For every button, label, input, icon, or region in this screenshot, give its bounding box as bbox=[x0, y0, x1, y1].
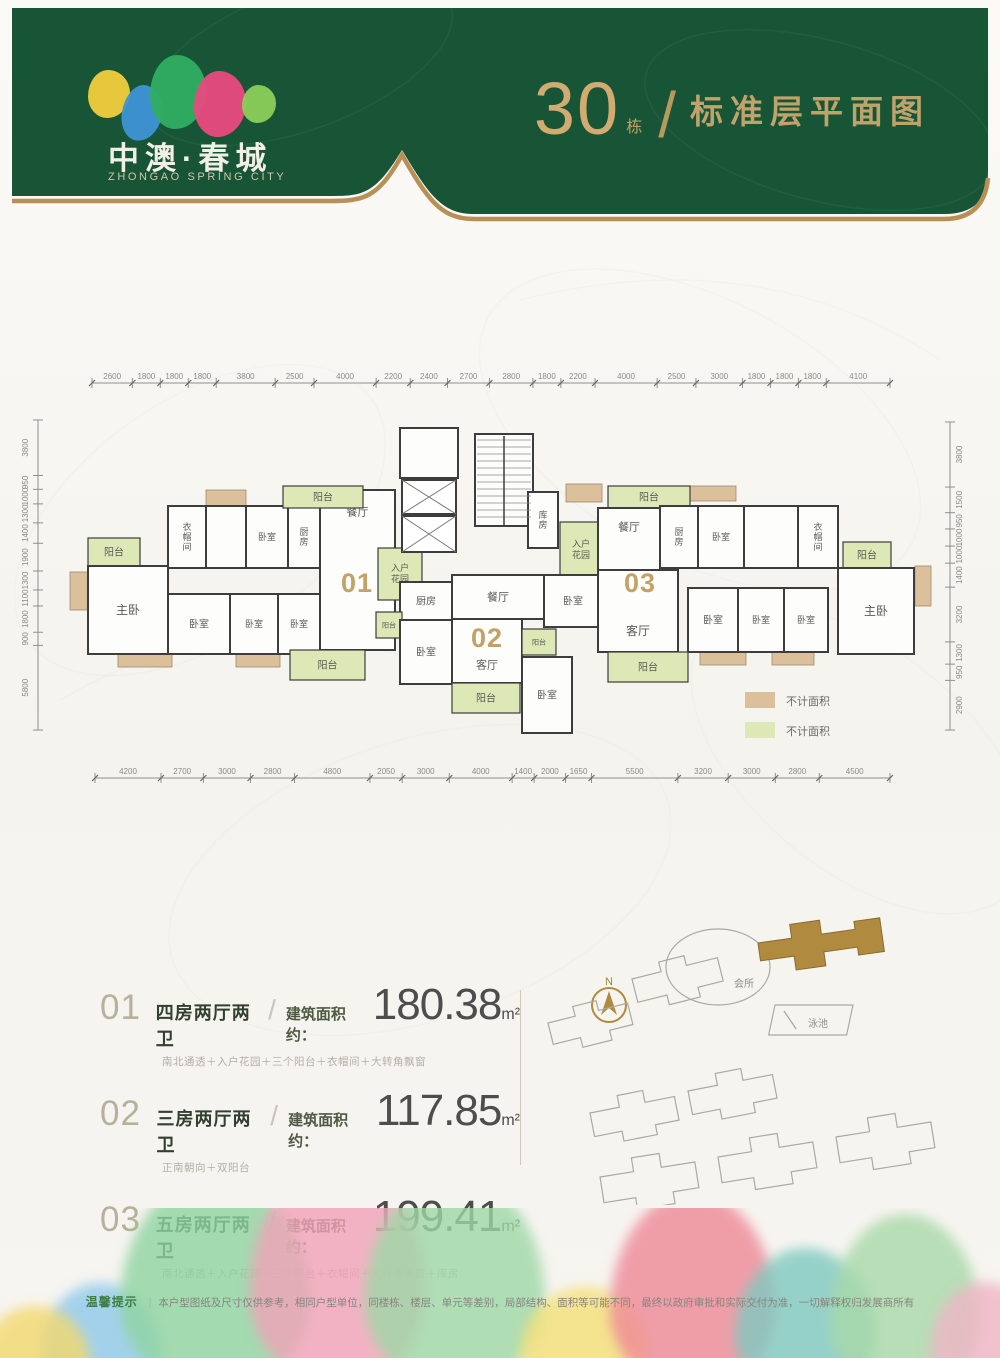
room-label: 阳台 bbox=[639, 490, 659, 503]
header-title-group: 30 栋 / 标准层平面图 bbox=[534, 78, 930, 141]
room-label: 卧室 bbox=[416, 645, 436, 658]
site-buildings-outline bbox=[546, 929, 937, 1205]
dim-label: 2400 bbox=[420, 372, 438, 381]
dim-label: 3000 bbox=[743, 767, 761, 776]
room-label: 客厅 bbox=[626, 623, 650, 638]
plan-unit-number-03: 03 bbox=[624, 568, 656, 598]
room-label: 卧室 bbox=[563, 594, 583, 607]
footer-tree bbox=[365, 1208, 545, 1358]
room-label: 阳台 bbox=[857, 548, 877, 561]
dim-label: 1800 bbox=[165, 372, 183, 381]
unit-slash: / bbox=[268, 994, 276, 1026]
dim-label: 4200 bbox=[119, 767, 137, 776]
room-label: 卧室 bbox=[703, 613, 723, 626]
dim-label: 5800 bbox=[21, 678, 30, 696]
room-label: 餐厅 bbox=[487, 590, 509, 604]
dim-label: 4000 bbox=[617, 372, 635, 381]
dim-label: 2900 bbox=[955, 696, 964, 714]
header-banner: 中澳·春城 ZHONGAO SPRING CITY 30 栋 / 标准层平面图 bbox=[0, 0, 1000, 235]
dim-label: 1500 bbox=[955, 490, 964, 508]
room-label: 衣 bbox=[813, 521, 822, 532]
bay-window bbox=[690, 486, 736, 501]
logo-leaf-lightgreen bbox=[242, 85, 276, 123]
legend-label: 不计面积 bbox=[786, 695, 830, 708]
room-space bbox=[744, 506, 798, 568]
dim-label: 4800 bbox=[323, 767, 341, 776]
room-label: 卧室 bbox=[189, 617, 209, 630]
legend-swatch-green bbox=[745, 722, 775, 738]
brand-name-en: ZHONGAO SPRING CITY bbox=[108, 171, 286, 183]
room-space bbox=[400, 428, 458, 478]
unit-features: 南北通透＋入户花园＋三个阳台＋衣帽间＋大转角飘窗 bbox=[162, 1054, 520, 1069]
building-suffix: 栋 bbox=[626, 113, 642, 137]
page-title: 标准层平面图 bbox=[690, 85, 930, 133]
unit-info-row-01: 01 四房两厅两卫 / 建筑面积约： 180.38 m² 南北通透＋入户花园＋三… bbox=[100, 985, 520, 1069]
room-label: 入户 bbox=[572, 538, 590, 549]
unit-number: 01 bbox=[100, 988, 156, 1028]
dim-label: 1300 bbox=[21, 571, 30, 589]
unit-area-value: 117.85 bbox=[376, 1091, 501, 1131]
dim-label: 2500 bbox=[668, 372, 686, 381]
disclaimer: 温馨提示｜本户型图纸及尺寸仅供参考，相同户型单位，同楼栋、楼层、单元等差别，局部… bbox=[0, 1293, 1000, 1310]
room-label: 厨房 bbox=[416, 594, 436, 607]
dim-label: 1000 bbox=[21, 487, 30, 505]
room-label: 阳台 bbox=[382, 620, 396, 629]
legend-swatch-tan bbox=[745, 692, 775, 708]
bay-window bbox=[70, 572, 88, 610]
dim-label: 3000 bbox=[218, 767, 236, 776]
unit-area-prefix: 建筑面积约： bbox=[286, 1003, 367, 1045]
room-label: 帽 bbox=[182, 531, 191, 542]
floor-plan: 阳台主卧衣帽间卧室厨房餐厅阳台卧室卧室卧室阳台库房入户花园入户花园厨房阳台餐厅卧… bbox=[0, 360, 1000, 840]
dim-label: 1400 bbox=[955, 566, 964, 584]
building-number: 30 bbox=[534, 78, 620, 141]
dim-label: 2600 bbox=[103, 372, 121, 381]
room-label: 库 bbox=[538, 509, 547, 520]
room-label: 阳台 bbox=[313, 490, 333, 503]
dim-label: 1000 bbox=[955, 545, 964, 563]
plan-unit-number-01: 01 bbox=[341, 568, 373, 598]
room-label: 卧室 bbox=[258, 531, 276, 542]
bay-window bbox=[206, 490, 246, 506]
room-label: 卧室 bbox=[797, 614, 815, 625]
dim-label: 2050 bbox=[377, 767, 395, 776]
dim-label: 3000 bbox=[710, 372, 728, 381]
room-label: 房 bbox=[299, 536, 308, 547]
room-label: 主卧 bbox=[864, 604, 888, 618]
dim-label: 1800 bbox=[748, 372, 766, 381]
north-arrow-icon: N bbox=[592, 976, 626, 1022]
unit-info-row-02: 02 三房两厅两卫 / 建筑面积约： 117.85 m² 正南朝向＋双阳台 bbox=[100, 1091, 520, 1175]
dim-label: 1650 bbox=[570, 767, 588, 776]
dim-label: 3200 bbox=[694, 767, 712, 776]
room-label: 花园 bbox=[572, 549, 590, 560]
dim-label: 1400 bbox=[514, 767, 532, 776]
unit-type: 三房两厅两卫 bbox=[156, 1105, 260, 1157]
footer-tree-band bbox=[0, 1208, 1000, 1358]
dim-label: 2500 bbox=[286, 372, 304, 381]
room-label: 厨 bbox=[299, 527, 308, 537]
room-label: 阳台 bbox=[318, 658, 338, 671]
room-label: 卧室 bbox=[752, 614, 770, 625]
room-label: 阳台 bbox=[638, 660, 658, 673]
dim-label: 1800 bbox=[193, 372, 211, 381]
room-餐厅 bbox=[598, 508, 660, 570]
dim-label: 1000 bbox=[955, 528, 964, 546]
room-label: 客厅 bbox=[476, 658, 498, 672]
dim-label: 4100 bbox=[849, 372, 867, 381]
room-label: 房 bbox=[674, 536, 683, 547]
dim-label: 3800 bbox=[237, 372, 255, 381]
unit-features: 正南朝向＋双阳台 bbox=[162, 1160, 520, 1175]
dim-label: 3800 bbox=[955, 445, 964, 463]
dim-label: 1800 bbox=[776, 372, 794, 381]
room-label: 卧室 bbox=[537, 688, 557, 701]
dim-label: 5500 bbox=[626, 767, 644, 776]
title-slash: / bbox=[658, 90, 676, 141]
poster-page: { "header": { "brand_cn": "中澳·春城", "bran… bbox=[0, 0, 1000, 1358]
dim-label: 950 bbox=[955, 514, 964, 528]
room-label: 卧室 bbox=[245, 618, 263, 629]
room-label: 房 bbox=[538, 519, 547, 530]
room-label: 餐厅 bbox=[618, 520, 640, 534]
dim-label: 2000 bbox=[541, 767, 559, 776]
room-label: 帽 bbox=[813, 531, 822, 542]
room-label: 阳台 bbox=[476, 691, 496, 704]
dim-label: 2700 bbox=[460, 372, 478, 381]
brand-logo: 中澳·春城 ZHONGAO SPRING CITY bbox=[70, 45, 330, 195]
unit-area-prefix: 建筑面积约： bbox=[288, 1109, 370, 1151]
site-map: N 会所 泳池 bbox=[540, 905, 990, 1205]
dim-label: 2700 bbox=[173, 767, 191, 776]
pool-label: 泳池 bbox=[808, 1017, 828, 1030]
dim-label: 1400 bbox=[21, 524, 30, 542]
dim-label: 3800 bbox=[21, 438, 30, 456]
dim-label: 4500 bbox=[846, 767, 864, 776]
room-label: 间 bbox=[813, 541, 822, 552]
dim-label: 1900 bbox=[21, 548, 30, 566]
unit-area-unit: m² bbox=[501, 1112, 520, 1130]
room-label: 间 bbox=[182, 541, 191, 552]
room-label: 厨 bbox=[674, 527, 683, 537]
dim-label: 2800 bbox=[502, 372, 520, 381]
dim-label: 1800 bbox=[538, 372, 556, 381]
dim-label: 4000 bbox=[472, 767, 490, 776]
room-label: 阳台 bbox=[104, 545, 124, 558]
room-label: 卧室 bbox=[290, 618, 308, 629]
club-label: 会所 bbox=[734, 977, 754, 990]
room-label: 入户 bbox=[391, 562, 409, 573]
room-label: 卧室 bbox=[712, 531, 730, 542]
dim-label: 1300 bbox=[955, 644, 964, 662]
legend-label: 不计面积 bbox=[786, 725, 830, 738]
logo-leaf-pink bbox=[194, 71, 246, 137]
unit-number: 02 bbox=[100, 1094, 156, 1134]
dim-label: 2200 bbox=[569, 372, 587, 381]
unit-slash: / bbox=[270, 1100, 278, 1132]
room-label: 衣 bbox=[182, 521, 191, 532]
dim-label: 1300 bbox=[21, 504, 30, 522]
dim-label: 1800 bbox=[21, 610, 30, 628]
dim-label: 2200 bbox=[384, 372, 402, 381]
bay-window bbox=[772, 652, 814, 665]
bay-window bbox=[915, 566, 931, 606]
dim-label: 3000 bbox=[417, 767, 435, 776]
unit-area-value: 180.38 bbox=[373, 985, 502, 1025]
dim-label: 1100 bbox=[21, 589, 30, 607]
disclaimer-label: 温馨提示 bbox=[86, 1295, 138, 1309]
bay-window bbox=[118, 654, 172, 667]
unit-type: 四房两厅两卫 bbox=[156, 999, 258, 1051]
bay-window bbox=[700, 652, 746, 665]
disclaimer-separator: ｜ bbox=[145, 1297, 156, 1309]
site-building-30-highlight bbox=[756, 912, 885, 975]
dim-label: 950 bbox=[21, 475, 30, 489]
bay-window bbox=[566, 484, 602, 502]
dim-label: 950 bbox=[955, 665, 964, 679]
dim-label: 1800 bbox=[137, 372, 155, 381]
dim-label: 900 bbox=[21, 632, 30, 646]
svg-text:N: N bbox=[605, 976, 613, 988]
info-sitemap-divider bbox=[520, 990, 521, 1165]
bay-window bbox=[236, 654, 280, 667]
dim-label: 4000 bbox=[336, 372, 354, 381]
dim-label: 2800 bbox=[788, 767, 806, 776]
dim-label: 3200 bbox=[955, 605, 964, 623]
room-space bbox=[206, 506, 246, 568]
room-label: 主卧 bbox=[116, 603, 140, 617]
room-label: 阳台 bbox=[532, 637, 546, 646]
plan-unit-number-02: 02 bbox=[471, 623, 503, 653]
unit-area-unit: m² bbox=[501, 1006, 520, 1024]
dim-label: 1800 bbox=[803, 372, 821, 381]
dim-label: 2800 bbox=[264, 767, 282, 776]
disclaimer-text: 本户型图纸及尺寸仅供参考，相同户型单位，同楼栋、楼层、单元等差别，局部结构、面积… bbox=[158, 1297, 914, 1309]
